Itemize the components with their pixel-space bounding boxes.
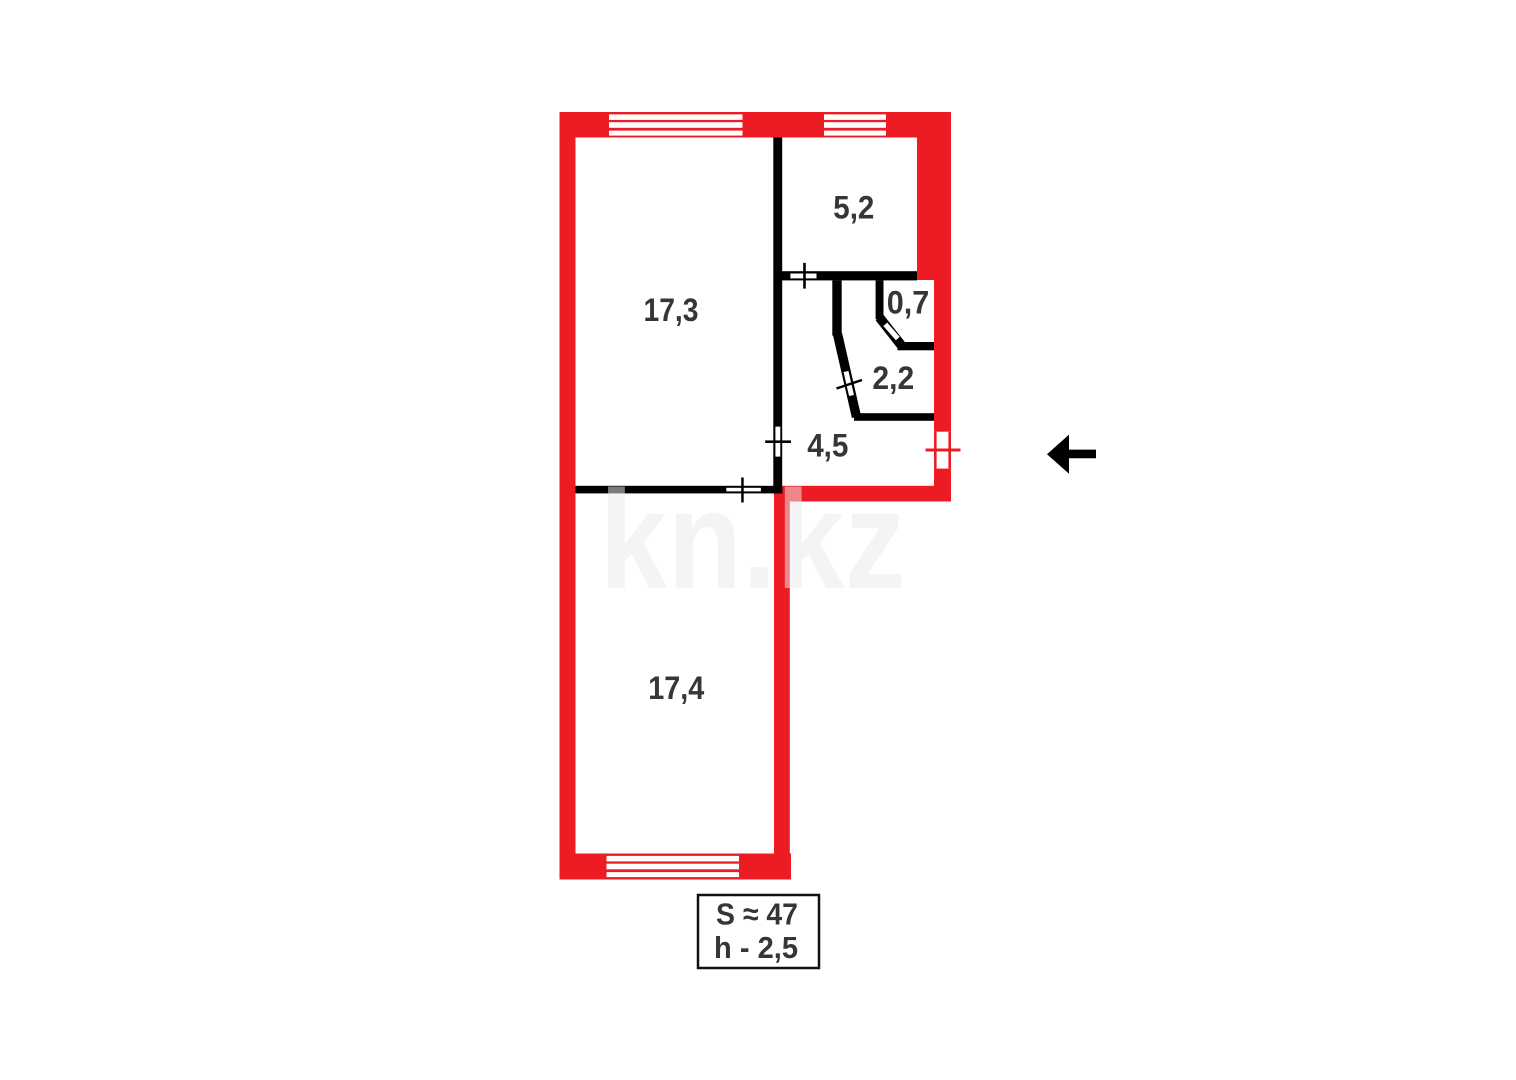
svg-text:kn.kz: kn.kz bbox=[600, 461, 906, 618]
svg-text:17,3: 17,3 bbox=[644, 292, 699, 328]
svg-text:0,7: 0,7 bbox=[887, 284, 930, 320]
svg-text:S ≈ 47: S ≈ 47 bbox=[716, 897, 798, 932]
svg-text:4,5: 4,5 bbox=[807, 428, 848, 464]
svg-text:h - 2,5: h - 2,5 bbox=[714, 930, 798, 965]
svg-text:17,4: 17,4 bbox=[648, 670, 704, 706]
svg-text:2,2: 2,2 bbox=[872, 360, 914, 396]
svg-text:5,2: 5,2 bbox=[833, 190, 874, 226]
